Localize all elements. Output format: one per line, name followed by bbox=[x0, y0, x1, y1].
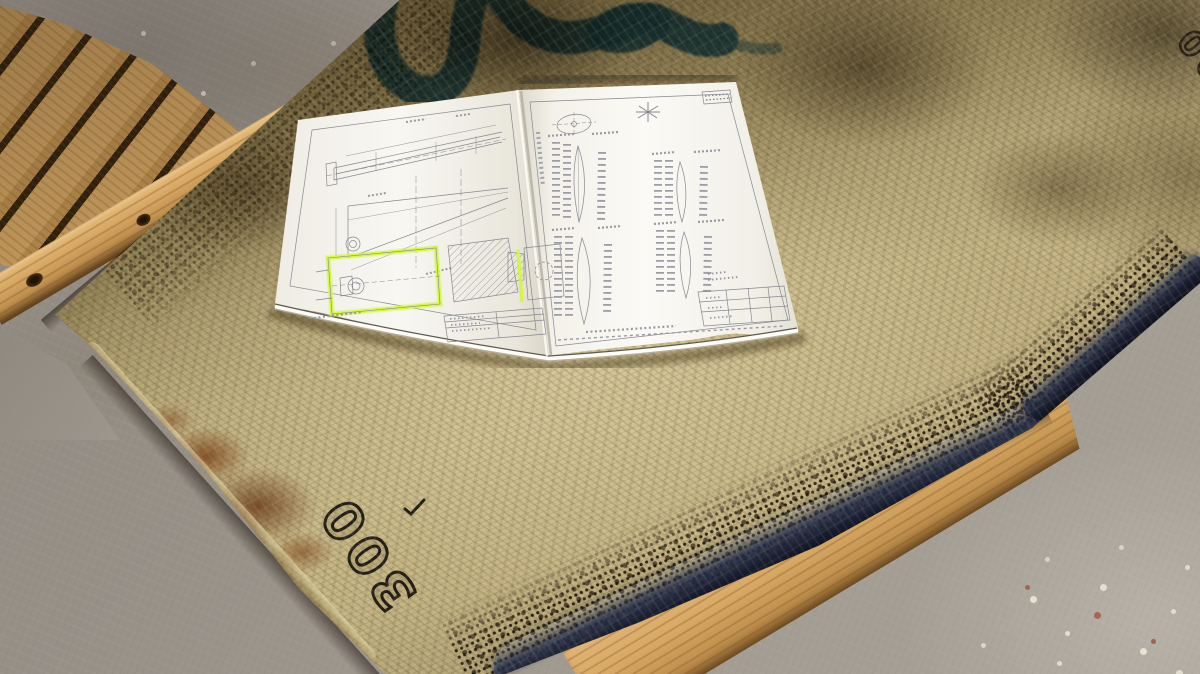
technical-drawing-sheet bbox=[256, 68, 816, 368]
small-check-squiggle bbox=[402, 496, 428, 518]
shadow-above-fold bbox=[518, 76, 736, 83]
paint-highlight bbox=[387, 0, 582, 78]
floor-paint-speckles bbox=[0, 0, 3, 3]
paint-blob bbox=[582, 0, 674, 60]
hatched-cone-section bbox=[448, 238, 518, 302]
paint-streak bbox=[722, 40, 777, 49]
handwritten-number-partial: 00 bbox=[1150, 0, 1200, 109]
photo-scene: 300 00 bbox=[0, 0, 1200, 674]
paint-stroke-wave bbox=[500, 0, 722, 40]
sheet-pages bbox=[275, 82, 798, 361]
